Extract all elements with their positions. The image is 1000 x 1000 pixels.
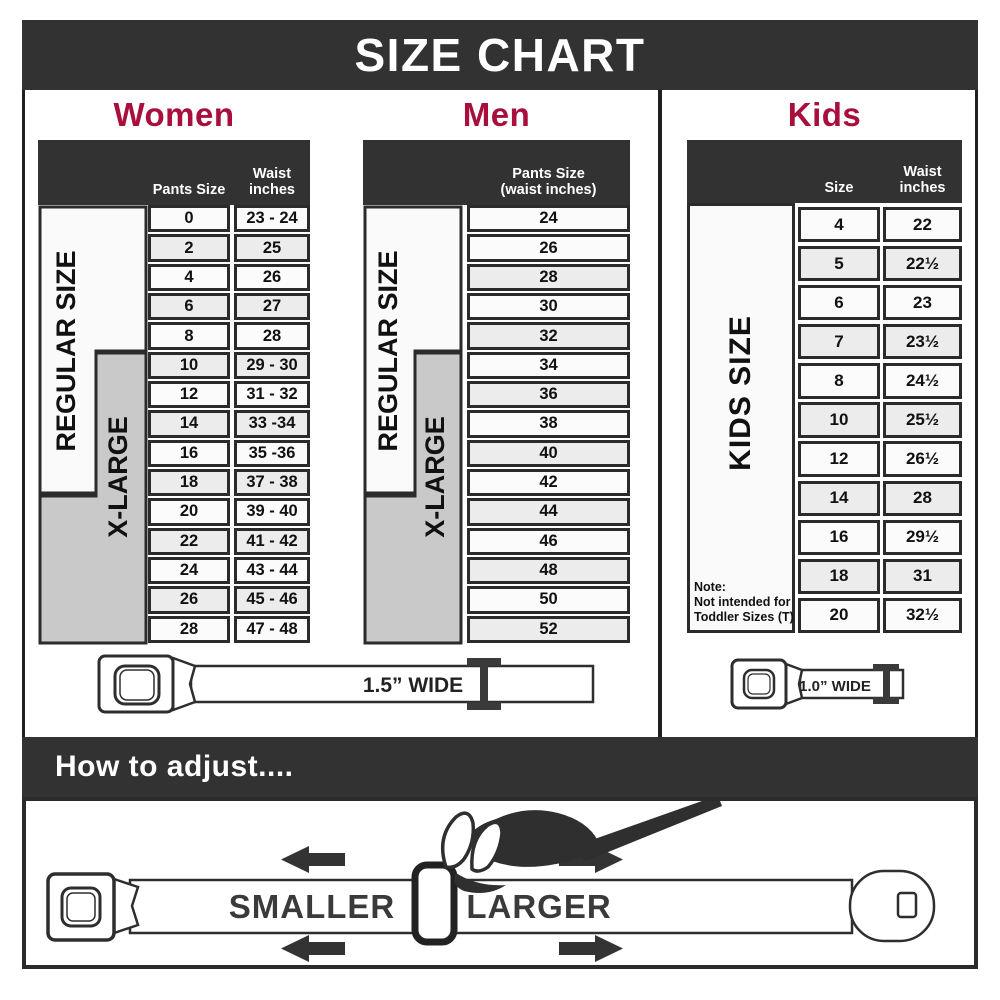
women-pants-size-cell: 18: [148, 469, 230, 496]
women-pants-size-cell: 4: [148, 264, 230, 291]
kids-size-cell: 8: [798, 363, 880, 398]
panel-divider: [658, 90, 662, 737]
women-pants-size-cell: 24: [148, 557, 230, 584]
women-waist-cell: 25: [234, 234, 310, 261]
women-pants-size-cell: 8: [148, 322, 230, 349]
men-pants-size-column: 242628303234363840424446485052: [467, 205, 630, 645]
women-waist-cell: 41 - 42: [234, 528, 310, 555]
kids-waist-header: Waist inches: [883, 164, 962, 197]
men-pants-size-cell: 52: [467, 616, 630, 643]
men-pants-size-cell: 36: [467, 381, 630, 408]
women-pants-size-header: Pants Size: [148, 182, 230, 199]
women-pants-size-cell: 28: [148, 616, 230, 643]
women-pants-size-column: 0246810121416182022242628: [148, 205, 230, 645]
kids-note: Note: Not intended for Toddler Sizes (T): [694, 580, 794, 625]
kids-waist-column: 2222½2323½24½25½26½2829½3132½: [883, 207, 962, 637]
kids-size-cell: 5: [798, 246, 880, 281]
men-table-header: Pants Size (waist inches): [363, 140, 630, 205]
women-heading: Women: [38, 96, 310, 138]
women-waist-cell: 43 - 44: [234, 557, 310, 584]
kids-size-cell: 10: [798, 402, 880, 437]
women-waist-column: 23 - 242526272829 - 3031 - 3233 -3435 -3…: [234, 205, 310, 645]
arrow-left-bottom-icon: [281, 935, 345, 962]
kids-waist-cell: 22½: [883, 246, 962, 281]
men-xlarge-label: X-LARGE: [420, 416, 450, 538]
adjust-illustration-box: SMALLER LARGER: [22, 797, 978, 969]
women-waist-cell: 26: [234, 264, 310, 291]
men-pants-size-cell: 34: [467, 352, 630, 379]
women-table-header: Pants Size Waist inches: [38, 140, 310, 205]
women-waist-cell: 23 - 24: [234, 205, 310, 232]
belt-tip: [850, 871, 934, 941]
women-waist-header: Waist inches: [234, 166, 310, 199]
women-regular-size-label: REGULAR SIZE: [51, 250, 81, 451]
kids-waist-cell: 24½: [883, 363, 962, 398]
buckle-button-inner: [748, 674, 770, 694]
kids-waist-cell: 28: [883, 481, 962, 516]
buckle-button-inner: [67, 893, 95, 921]
women-pants-size-cell: 12: [148, 381, 230, 408]
page-title: SIZE CHART: [355, 29, 646, 81]
frame-left-border: [22, 90, 25, 737]
belt-tip-hole: [898, 893, 916, 917]
kids-waist-cell: 23: [883, 285, 962, 320]
kids-waist-cell: 31: [883, 559, 962, 594]
kids-size-label-box: KIDS SIZE Note: Not intended for Toddler…: [687, 203, 795, 633]
men-pants-size-cell: 44: [467, 498, 630, 525]
kids-size-cell: 18: [798, 559, 880, 594]
women-waist-cell: 28: [234, 322, 310, 349]
women-waist-cell: 45 - 46: [234, 586, 310, 613]
men-pants-size-cell: 32: [467, 322, 630, 349]
women-pants-size-cell: 2: [148, 234, 230, 261]
frame-right-border: [975, 90, 978, 737]
women-pants-size-cell: 20: [148, 498, 230, 525]
women-xlarge-label: X-LARGE: [103, 416, 133, 538]
adjust-illustration: SMALLER LARGER: [26, 801, 974, 965]
kids-size-cell: 7: [798, 324, 880, 359]
kids-heading: Kids: [687, 96, 962, 138]
kids-size-header: Size: [798, 180, 880, 197]
women-pants-size-cell: 14: [148, 410, 230, 437]
arrow-left-top-icon: [281, 846, 345, 873]
how-to-adjust-bar: How to adjust....: [22, 737, 978, 797]
kids-waist-cell: 23½: [883, 324, 962, 359]
men-regular-size-label: REGULAR SIZE: [373, 250, 403, 451]
kids-waist-cell: 22: [883, 207, 962, 242]
larger-label: LARGER: [466, 888, 611, 925]
kids-belt-width-label: 1.0” WIDE: [799, 678, 871, 695]
men-pants-size-cell: 48: [467, 557, 630, 584]
kids-waist-cell: 25½: [883, 402, 962, 437]
men-pants-size-cell: 28: [467, 264, 630, 291]
women-waist-cell: 35 -36: [234, 440, 310, 467]
men-pants-size-cell: 24: [467, 205, 630, 232]
women-waist-cell: 39 - 40: [234, 498, 310, 525]
women-waist-cell: 31 - 32: [234, 381, 310, 408]
kids-size-cell: 20: [798, 598, 880, 633]
how-to-adjust-heading: How to adjust....: [55, 750, 294, 783]
women-pants-size-cell: 6: [148, 293, 230, 320]
men-pants-size-cell: 40: [467, 440, 630, 467]
belt-adjuster-slider: [415, 865, 454, 942]
kids-size-cell: 4: [798, 207, 880, 242]
women-waist-cell: 27: [234, 293, 310, 320]
kids-size-cell: 12: [798, 441, 880, 476]
adult-belt-illustration: 1.5” WIDE: [95, 650, 610, 718]
men-heading: Men: [363, 96, 630, 138]
kids-table-header: Size Waist inches: [687, 140, 962, 203]
women-waist-cell: 47 - 48: [234, 616, 310, 643]
adult-belt-width-label: 1.5” WIDE: [363, 674, 463, 697]
women-size-range-labels: REGULAR SIZE X-LARGE: [38, 205, 148, 645]
men-pants-size-cell: 42: [467, 469, 630, 496]
kids-belt-illustration: 1.0” WIDE: [728, 650, 916, 718]
men-pants-size-cell: 46: [467, 528, 630, 555]
arrow-right-bottom-icon: [559, 935, 623, 962]
kids-size-label: KIDS SIZE: [724, 315, 758, 471]
men-pants-size-cell: 26: [467, 234, 630, 261]
kids-waist-cell: 26½: [883, 441, 962, 476]
men-size-range-labels: REGULAR SIZE X-LARGE: [363, 205, 463, 645]
kids-waist-cell: 29½: [883, 520, 962, 555]
kids-size-column: 45678101214161820: [798, 207, 880, 637]
men-pants-size-cell: 38: [467, 410, 630, 437]
pulled-strap: [572, 801, 722, 861]
kids-waist-cell: 32½: [883, 598, 962, 633]
women-pants-size-cell: 22: [148, 528, 230, 555]
women-pants-size-cell: 0: [148, 205, 230, 232]
buckle-button-inner: [120, 670, 154, 700]
title-bar: SIZE CHART: [22, 20, 978, 90]
women-pants-size-cell: 10: [148, 352, 230, 379]
men-pants-size-cell: 50: [467, 586, 630, 613]
women-pants-size-cell: 26: [148, 586, 230, 613]
women-waist-cell: 33 -34: [234, 410, 310, 437]
kids-size-cell: 6: [798, 285, 880, 320]
kids-size-cell: 16: [798, 520, 880, 555]
men-pants-size-cell: 30: [467, 293, 630, 320]
women-waist-cell: 37 - 38: [234, 469, 310, 496]
kids-size-cell: 14: [798, 481, 880, 516]
men-pants-size-header: Pants Size (waist inches): [467, 166, 630, 199]
smaller-label: SMALLER: [229, 888, 396, 925]
women-waist-cell: 29 - 30: [234, 352, 310, 379]
women-pants-size-cell: 16: [148, 440, 230, 467]
